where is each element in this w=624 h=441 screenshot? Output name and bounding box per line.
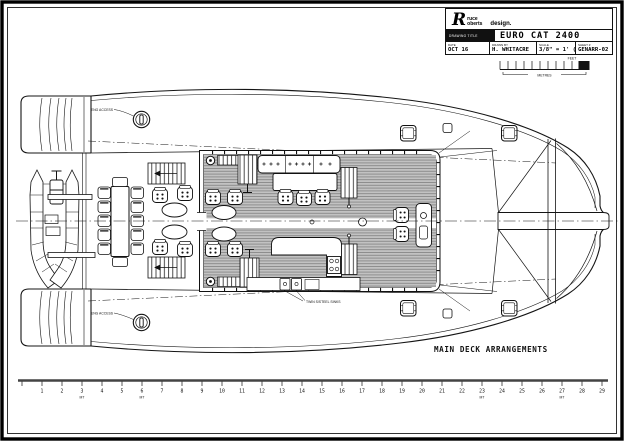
tender-seat bbox=[45, 215, 58, 224]
ruler-number: 17 bbox=[359, 389, 365, 395]
field-scale: SCALE 3/8" = 1' (32) bbox=[537, 42, 576, 55]
drawing-title-row: DRAWING TITLE EURO CAT 2400 bbox=[446, 30, 612, 42]
scale-bar: FEET METRES bbox=[500, 57, 589, 78]
end-chair bbox=[113, 178, 128, 187]
drawing-title-label: DRAWING TITLE bbox=[446, 30, 495, 41]
ruler-number: 12 bbox=[259, 389, 265, 395]
port-bow-cutout bbox=[492, 141, 597, 213]
starboard-transom bbox=[21, 289, 91, 346]
field-value: H. WHITACRE bbox=[490, 47, 536, 53]
lounge-table bbox=[212, 206, 236, 220]
davit-beam bbox=[48, 195, 92, 200]
ruler-number: 27 bbox=[559, 389, 565, 395]
drawing-caption: MAIN DECK ARRANGEMENTS bbox=[434, 345, 548, 354]
ruler: 123MT456MT789101112131415161718192021222… bbox=[18, 381, 608, 400]
drawing-title: EURO CAT 2400 bbox=[495, 30, 612, 41]
ruler-number: 18 bbox=[379, 389, 385, 395]
scale-bar-top-label: FEET bbox=[568, 57, 577, 61]
title-block-fields: DATE OCT 16 DRAWN BY H. WHITACRE SCALE 3… bbox=[446, 42, 612, 55]
deck-fitting bbox=[359, 218, 367, 226]
flybridge-stairs-starboard bbox=[148, 257, 185, 278]
saloon: TWIN S/STEEL SINKS bbox=[197, 151, 441, 305]
ruler-number: 25 bbox=[519, 389, 525, 395]
small-hatch bbox=[443, 309, 452, 318]
ruler-unit: MT bbox=[560, 396, 565, 400]
ruler-number: 13 bbox=[279, 389, 285, 395]
small-hatch bbox=[443, 124, 452, 133]
dinette-table bbox=[273, 174, 337, 191]
ruler-number: 20 bbox=[419, 389, 425, 395]
helm-seat bbox=[393, 208, 408, 223]
outboard-motor bbox=[50, 180, 63, 204]
ruler-number: 26 bbox=[539, 389, 545, 395]
leader-line bbox=[114, 313, 134, 320]
ruler-number: 8 bbox=[181, 389, 184, 395]
ruler-number: 21 bbox=[439, 389, 445, 395]
logo-name: ruce oberts bbox=[467, 17, 482, 27]
ruler-number: 29 bbox=[599, 389, 605, 395]
leader-line bbox=[114, 110, 134, 117]
end-chair bbox=[113, 258, 128, 267]
field-drawn-by: DRAWN BY H. WHITACRE bbox=[490, 42, 537, 55]
sink bbox=[280, 279, 290, 291]
sinks-label: TWIN S/STEEL SINKS bbox=[306, 300, 341, 304]
title-block: R ruce oberts design. DRAWING TITLE EURO… bbox=[445, 8, 613, 55]
ruler-unit: MT bbox=[480, 396, 485, 400]
helm-console bbox=[416, 204, 432, 248]
aft-door-opening bbox=[197, 213, 207, 231]
deck-plan-svg: ENG ACCESS ENG ACCESS bbox=[0, 0, 624, 441]
logo-suffix: design. bbox=[490, 21, 511, 27]
aft-deck bbox=[98, 163, 193, 278]
ruler-unit: MT bbox=[140, 396, 145, 400]
field-sheet: SHEET # GENARR-02 bbox=[576, 42, 612, 55]
ruler-number: 1 bbox=[41, 389, 44, 395]
tender-seat bbox=[46, 227, 60, 236]
table-pedestal bbox=[310, 220, 314, 224]
helm-seat bbox=[393, 227, 408, 242]
tender-dinghy bbox=[30, 170, 95, 288]
ruler-number: 11 bbox=[239, 389, 245, 395]
brand-logo: R ruce oberts design. bbox=[446, 9, 612, 30]
ruler-number: 6 bbox=[141, 389, 144, 395]
ruler-number: 3 bbox=[81, 389, 84, 395]
field-value: GENARR-02 bbox=[576, 47, 612, 53]
field-value: 3/8" = 1' (32) bbox=[537, 47, 575, 53]
ruler-marks: 123MT456MT789101112131415161718192021222… bbox=[41, 382, 605, 400]
logo-initial: R bbox=[452, 13, 466, 28]
ruler-number: 2 bbox=[61, 389, 64, 395]
ruler-number: 22 bbox=[459, 389, 465, 395]
ruler-number: 9 bbox=[201, 389, 204, 395]
port-transom bbox=[21, 96, 91, 153]
ruler-number: 10 bbox=[219, 389, 225, 395]
aft-lounge-port bbox=[153, 185, 193, 217]
ruler-number: 14 bbox=[299, 389, 305, 395]
logo-name-bottom: oberts bbox=[467, 22, 482, 27]
ruler-number: 24 bbox=[499, 389, 505, 395]
cocktail-table bbox=[162, 225, 187, 239]
ruler-number: 28 bbox=[579, 389, 585, 395]
dining-table bbox=[111, 187, 129, 257]
starboard-hatch-label: ENG ACCESS bbox=[91, 312, 114, 316]
ruler-number: 23 bbox=[479, 389, 485, 395]
ruler-unit: MT bbox=[80, 396, 85, 400]
drainer bbox=[305, 280, 319, 290]
ruler-number: 4 bbox=[101, 389, 104, 395]
ruler-number: 15 bbox=[319, 389, 325, 395]
flybridge-stairs-port bbox=[148, 163, 185, 184]
aft-galley-counter bbox=[247, 278, 360, 291]
davit-beam bbox=[48, 253, 95, 258]
drawing-sheet: ENG ACCESS ENG ACCESS bbox=[0, 0, 624, 441]
ruler-number: 7 bbox=[161, 389, 164, 395]
sink bbox=[292, 279, 302, 291]
starboard-bow-cutout bbox=[492, 230, 597, 302]
field-value: OCT 16 bbox=[446, 47, 489, 53]
scale-bar-end-block bbox=[579, 62, 589, 70]
scale-bar-bottom-label: METRES bbox=[537, 74, 552, 78]
stove bbox=[328, 257, 341, 274]
ruler-number: 19 bbox=[399, 389, 405, 395]
ruler-number: 5 bbox=[121, 389, 124, 395]
ruler-number: 16 bbox=[339, 389, 345, 395]
port-hatch-label: ENG ACCESS bbox=[91, 108, 114, 112]
cocktail-table bbox=[162, 203, 187, 217]
sink-leader-lines bbox=[285, 291, 305, 301]
field-date: DATE OCT 16 bbox=[446, 42, 490, 55]
aft-lounge-starboard bbox=[153, 225, 193, 257]
lounge-table bbox=[212, 227, 236, 241]
